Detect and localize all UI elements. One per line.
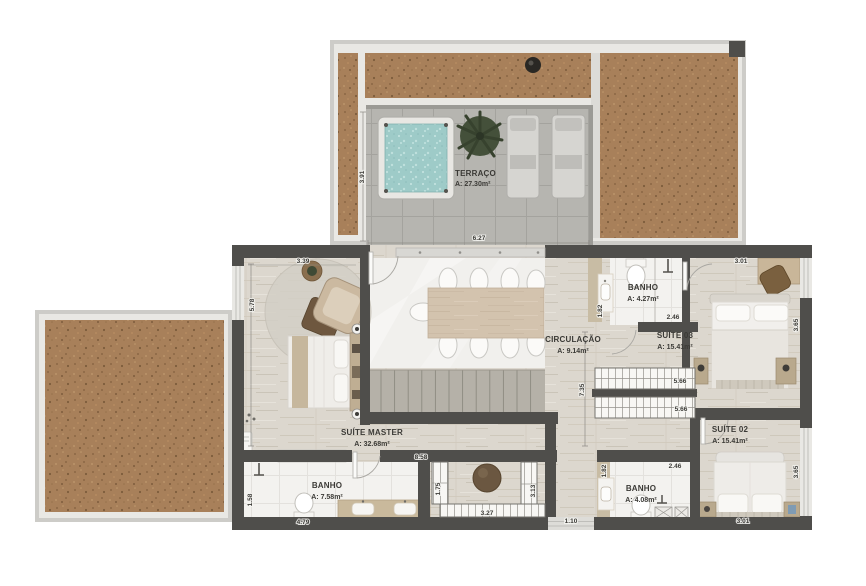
room-area-banho-inferior: A: 7.58m² (311, 494, 343, 501)
dining-table (428, 288, 544, 338)
room-area-banho-suite02: A: 4.08m² (625, 497, 657, 504)
closet-wardrobe-right (521, 462, 537, 506)
closet-pouf (473, 464, 501, 492)
room-area-terraco: A: 27.30m² (455, 181, 491, 188)
nightstand (784, 502, 800, 517)
floor-plan-canvas: TERRAÇO A: 27.30m² SUÍTE MASTER A: 32.68… (0, 0, 866, 586)
room-area-circulacao: A: 9.14m² (557, 348, 589, 355)
left-cork-deck (45, 320, 224, 512)
nightstand (694, 358, 708, 384)
dim-suite03-depth: 3.65 (793, 318, 800, 331)
room-label-banho-suite02: BANHO (626, 484, 656, 493)
dim-circ-depth: 7.35 (579, 383, 586, 396)
dim-banho-inf-left: 1.58 (247, 493, 254, 506)
dim-suite03-width: 3.01 (735, 258, 748, 265)
room-area-suite03: A: 15.41m² (657, 344, 693, 351)
dim-suite02-width: 3.01 (737, 518, 750, 525)
lounge-chair (552, 115, 585, 198)
dim-banho-inf-width: 4.79 (297, 519, 310, 526)
room-label-circulacao: CIRCULAÇÃO (545, 335, 601, 344)
drain-icon (525, 57, 541, 73)
terrace-block (330, 40, 746, 246)
nightstand (776, 358, 796, 384)
window (800, 428, 812, 516)
terrace-wall-corner (729, 41, 745, 57)
shower-floor (655, 507, 688, 518)
dim-hall-width: 1.10 (565, 518, 578, 525)
terrace-cork-strip-left (338, 53, 358, 235)
void-glass-railing (396, 248, 545, 257)
dim-master-width: 3.39 (297, 258, 310, 265)
dim-master-bottom: 8.58 (415, 454, 428, 461)
suite02-bed (714, 452, 786, 518)
nightstand (698, 502, 716, 517)
floor-plan-page: TERRAÇO A: 27.30m² SUÍTE MASTER A: 32.68… (0, 0, 866, 586)
terrace-cork-band-top (365, 53, 591, 98)
dim-closet-right: 3.13 (530, 484, 537, 497)
dim-closet-inf: 5.66 (675, 406, 688, 413)
room-area-suite-master: A: 32.68m² (354, 441, 390, 448)
window (800, 258, 812, 298)
room-label-banho-inferior: BANHO (312, 481, 342, 490)
dim-terrace-depth: 3.91 (359, 170, 366, 183)
room-label-suite03: SUÍTE 03 (657, 331, 694, 340)
room-area-banho-superior: A: 4.27m² (627, 296, 659, 303)
room-label-terraco: TERRAÇO (455, 169, 496, 178)
dim-banho-s02-depth: 1.82 (601, 464, 608, 477)
room-area-suite02: A: 15.41m² (712, 438, 748, 445)
dim-banho-sup-width: 2.46 (667, 314, 680, 321)
dim-banho-s02-width: 2.46 (669, 463, 682, 470)
master-bed (288, 324, 363, 419)
terrace-cork-deck-right (600, 53, 738, 238)
staircase (368, 370, 545, 412)
dim-closet-width: 3.27 (481, 510, 494, 517)
dim-master-depth: 5.78 (249, 298, 256, 311)
window (232, 266, 244, 320)
dim-suite02-depth: 3.65 (793, 465, 800, 478)
dim-terrace-width: 6.27 (473, 235, 486, 242)
dim-closet-sup: 5.66 (674, 378, 687, 385)
room-label-suite02: SUÍTE 02 (712, 425, 749, 434)
hot-tub (378, 117, 454, 199)
left-deck-block (35, 310, 232, 522)
room-label-suite-master: SUÍTE MASTER (341, 428, 403, 437)
room-label-banho-superior: BANHO (628, 283, 658, 292)
dim-banho-sup-depth: 1.82 (597, 304, 604, 317)
dim-closet-left: 1.75 (435, 482, 442, 495)
lounge-chair (507, 115, 539, 198)
